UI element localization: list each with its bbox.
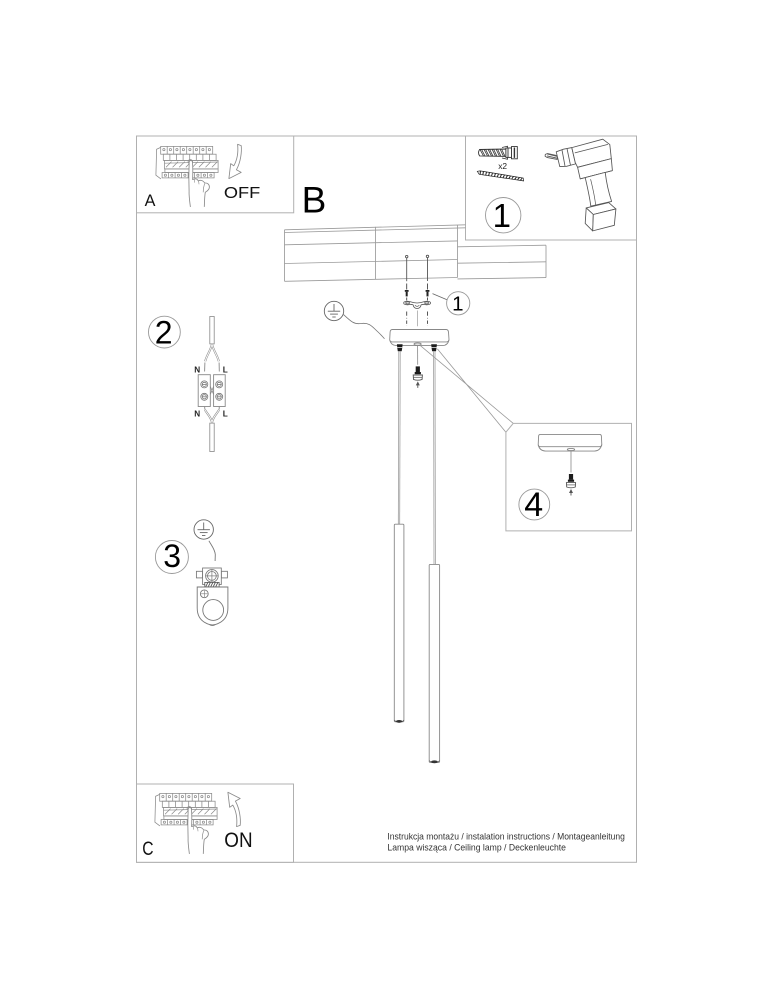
svg-text:L: L [223, 366, 228, 375]
svg-text:ON: ON [224, 829, 252, 852]
svg-text:A: A [145, 192, 156, 210]
svg-text:2: 2 [155, 315, 173, 351]
svg-text:C: C [142, 839, 153, 860]
svg-text:Lampa wisząca / Ceiling lamp /: Lampa wisząca / Ceiling lamp / Deckenleu… [387, 842, 566, 852]
svg-text:1: 1 [452, 293, 463, 316]
svg-text:L: L [223, 410, 228, 419]
svg-text:N: N [194, 410, 200, 419]
svg-text:B: B [302, 180, 327, 221]
svg-text:4: 4 [524, 486, 543, 524]
svg-text:1: 1 [493, 197, 511, 234]
svg-text:x2: x2 [498, 161, 507, 171]
svg-text:3: 3 [163, 538, 181, 574]
svg-text:OFF: OFF [224, 185, 260, 202]
svg-text:Instrukcja montażu / instalati: Instrukcja montażu / instalation instruc… [387, 832, 625, 842]
svg-text:N: N [194, 366, 200, 375]
